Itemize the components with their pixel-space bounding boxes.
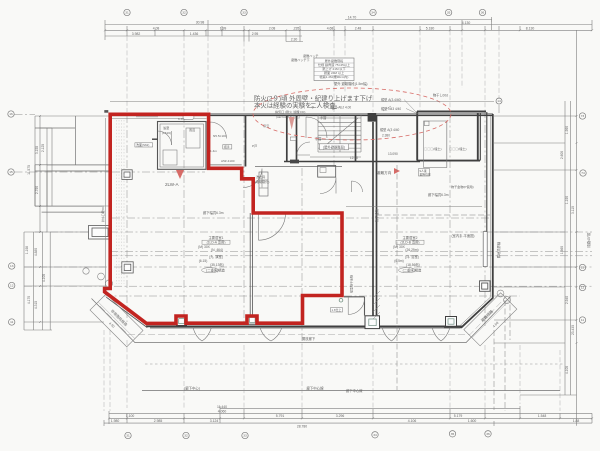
svg-text:廊下幅員6.3m: 廊下幅員6.3m xyxy=(203,210,224,215)
svg-text:73: 73 xyxy=(581,114,585,118)
svg-text:13.090: 13.090 xyxy=(388,152,398,156)
svg-text:縦型 A(3 4/40: 縦型 A(3 4/40 xyxy=(380,127,400,132)
svg-text:34: 34 xyxy=(371,11,375,15)
svg-text:廊下中心線: 廊下中心線 xyxy=(346,388,363,393)
svg-text:(26.29m): (26.29m) xyxy=(405,248,418,252)
svg-text:(18.56帖): (18.56帖) xyxy=(406,262,420,267)
svg-text:2.08: 2.08 xyxy=(269,26,276,30)
svg-text:浴室: 浴室 xyxy=(163,125,169,130)
svg-text:13: 13 xyxy=(10,264,14,268)
svg-text:P戸: P戸 xyxy=(252,144,257,148)
svg-text:31: 31 xyxy=(125,11,129,15)
svg-text:3.296: 3.296 xyxy=(336,414,345,418)
svg-text:1.6仕上: 1.6仕上 xyxy=(332,307,342,312)
svg-text:31: 31 xyxy=(126,434,130,438)
svg-text:4.105: 4.105 xyxy=(42,274,46,282)
svg-text:1.100: 1.100 xyxy=(126,414,135,418)
svg-text:4.105: 4.105 xyxy=(565,366,569,374)
svg-text:廊下中心線: 廊下中心線 xyxy=(307,385,325,390)
svg-text:把手: 把手 xyxy=(224,145,230,149)
svg-text:洗面(S62): 洗面(S62) xyxy=(136,142,149,147)
svg-text:28.780: 28.780 xyxy=(297,424,307,428)
svg-text:4.170: 4.170 xyxy=(27,296,31,304)
svg-text:4.130: 4.130 xyxy=(462,21,471,25)
svg-text:風呂: 風呂 xyxy=(189,127,195,132)
svg-text:2.790: 2.790 xyxy=(35,186,39,194)
svg-text:(M) 30X: (M) 30X xyxy=(198,245,211,249)
svg-text:14.70: 14.70 xyxy=(348,16,357,20)
svg-text:4.68: 4.68 xyxy=(327,26,334,30)
svg-text:36: 36 xyxy=(481,11,485,15)
svg-text:(N. 464): (N. 464) xyxy=(211,248,223,252)
svg-text:◯◯◯(埋土): ◯◯◯(埋土) xyxy=(424,146,442,151)
svg-text:1.436: 1.436 xyxy=(190,32,199,36)
svg-text:隣地境界線: 隣地境界線 xyxy=(496,241,501,258)
svg-text:1.4m: 1.4m xyxy=(210,149,217,153)
svg-text:2.940: 2.940 xyxy=(565,296,569,304)
svg-text:1.990: 1.990 xyxy=(565,126,569,134)
svg-text:5.791: 5.791 xyxy=(276,414,285,418)
svg-text:避難方向: 避難方向 xyxy=(377,170,392,175)
svg-text:2.600: 2.600 xyxy=(560,151,564,159)
svg-text:2.30: 2.30 xyxy=(291,38,298,42)
svg-text:(M) 30X: (M) 30X xyxy=(393,245,406,249)
svg-text:(1616): (1616) xyxy=(162,131,171,135)
svg-text:4.060: 4.060 xyxy=(218,410,227,414)
svg-text:2.125: 2.125 xyxy=(41,144,45,152)
svg-text:4.315: 4.315 xyxy=(34,301,38,309)
svg-text:1.600: 1.600 xyxy=(468,419,477,423)
svg-text:吊元: 吊元 xyxy=(263,124,269,128)
svg-text:換気口 (耐火 遮煙 FD): 換気口 (耐火 遮煙 FD) xyxy=(275,109,305,114)
svg-text:36: 36 xyxy=(486,432,490,436)
svg-text:(屋外避難階段): (屋外避難階段) xyxy=(323,144,345,149)
svg-text:開放廊下: 開放廊下 xyxy=(302,336,316,341)
svg-text:避難ハッチ: 避難ハッチ xyxy=(303,53,318,58)
svg-text:(35.13帖): (35.13帖) xyxy=(210,262,224,267)
svg-text:1.190: 1.190 xyxy=(565,196,569,204)
svg-text:32: 32 xyxy=(182,11,186,15)
svg-text:15: 15 xyxy=(9,170,13,174)
svg-text:3.982: 3.982 xyxy=(132,32,141,36)
svg-text:.235: .235 xyxy=(293,26,300,30)
svg-text:主要居室1: 主要居室1 xyxy=(208,235,223,240)
svg-text:35: 35 xyxy=(447,11,451,15)
svg-text:5.179: 5.179 xyxy=(454,414,463,418)
svg-text:(洋. 浴室): (洋. 浴室) xyxy=(405,254,419,259)
svg-text:縦型物干金物: 縦型物干金物 xyxy=(349,275,354,293)
svg-text:3.110: 3.110 xyxy=(571,206,575,214)
svg-text:(廊下中心): (廊下中心) xyxy=(184,385,200,390)
svg-text:33: 33 xyxy=(242,11,246,15)
svg-text:2.380: 2.380 xyxy=(382,134,390,138)
svg-text:手摺: 手摺 xyxy=(320,115,326,120)
svg-text:30.98: 30.98 xyxy=(196,21,205,25)
svg-text:N5.5×100: N5.5×100 xyxy=(213,134,227,138)
svg-text:L2.00: L2.00 xyxy=(350,156,358,160)
svg-text:14: 14 xyxy=(497,99,501,103)
svg-text:5.180: 5.180 xyxy=(426,26,435,30)
svg-text:(застосすねじ込): (застосすねじ込) xyxy=(276,114,300,119)
svg-text:(6.5m): (6.5m) xyxy=(394,259,404,263)
svg-text:(九. 演室): (九. 演室) xyxy=(209,254,223,259)
svg-text:11.440: 11.440 xyxy=(217,405,227,409)
svg-text:2.985: 2.985 xyxy=(154,419,163,423)
svg-text:2.95: 2.95 xyxy=(252,32,259,36)
svg-text:物干し00d: 物干し00d xyxy=(433,93,448,98)
svg-text:74: 74 xyxy=(581,171,585,175)
svg-text:11: 11 xyxy=(10,320,13,324)
svg-text:16: 16 xyxy=(9,112,13,116)
svg-text:1.88: 1.88 xyxy=(573,419,580,423)
svg-text:11: 11 xyxy=(581,318,584,322)
svg-text:1.980: 1.980 xyxy=(111,419,120,423)
svg-text:(6.15): (6.15) xyxy=(199,259,208,263)
svg-text:13: 13 xyxy=(581,266,585,270)
svg-text:排水口径50: 排水口径50 xyxy=(100,207,105,222)
svg-text:33: 33 xyxy=(243,434,247,438)
svg-text:順路45°振: 順路45°振 xyxy=(586,232,591,248)
svg-text:廊下幅員6.3m: 廊下幅員6.3m xyxy=(428,192,449,197)
svg-text:3.155: 3.155 xyxy=(35,146,39,154)
svg-text:3.124: 3.124 xyxy=(210,419,219,423)
svg-text:1.198: 1.198 xyxy=(25,246,29,254)
svg-text:屋外 避難階段(1.5m幅): 屋外 避難階段(1.5m幅) xyxy=(334,81,368,86)
svg-text:乗降位置: 乗降位置 xyxy=(420,173,431,177)
svg-text:34: 34 xyxy=(373,433,377,437)
svg-text:4.880: 4.880 xyxy=(34,248,38,256)
svg-text:(現場取付): (現場取付) xyxy=(255,179,269,184)
svg-text:23.435: 23.435 xyxy=(571,325,575,335)
svg-text:物干金物(P使用): 物干金物(P使用) xyxy=(451,184,474,189)
svg-text:幅員1.2M(柵90cm内): 幅員1.2M(柵90cm内) xyxy=(320,74,349,79)
svg-text:2LW-A: 2LW-A xyxy=(165,182,180,187)
svg-text:4.08: 4.08 xyxy=(153,26,160,30)
svg-text:12: 12 xyxy=(10,284,14,288)
svg-text:洗止具: 洗止具 xyxy=(256,174,265,179)
svg-text:(室内ま-平面図): (室内ま-平面図) xyxy=(451,233,474,238)
svg-text:11.575: 11.575 xyxy=(27,165,31,175)
svg-text:1.99: 1.99 xyxy=(220,26,227,30)
svg-text:4.106: 4.106 xyxy=(408,419,417,423)
svg-text:主要居室2: 主要居室2 xyxy=(402,235,417,240)
svg-text:2.48: 2.48 xyxy=(355,26,362,30)
svg-text:35: 35 xyxy=(451,432,455,436)
svg-text:32: 32 xyxy=(184,434,188,438)
svg-text:1.548: 1.548 xyxy=(538,414,547,418)
svg-text:(二重床)構造: (二重床)構造 xyxy=(403,268,422,273)
svg-text:◯◯◯(埋土): ◯◯◯(埋土) xyxy=(449,146,467,151)
svg-text:1.660: 1.660 xyxy=(560,246,564,254)
svg-text:A5Z.4100: A5Z.4100 xyxy=(221,159,235,163)
svg-text:8.130: 8.130 xyxy=(526,26,535,30)
